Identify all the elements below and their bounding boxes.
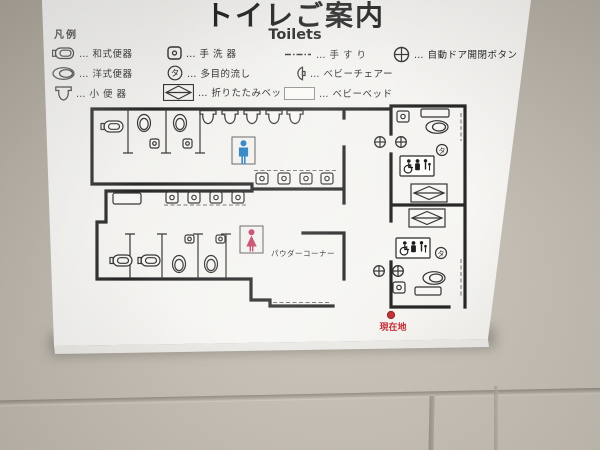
legend-item-urinal: … 小 便 器	[55, 85, 127, 101]
baby-bed	[421, 109, 449, 117]
svg-text:タ: タ	[171, 69, 180, 79]
wash-basin	[321, 173, 333, 184]
stall-basin	[216, 235, 225, 243]
legend-item-handrail: … 手 す り	[284, 46, 367, 62]
photo-of-toilet-sign: トイレご案内 Toilets 凡例 … 和式便器 … 洋式便器 … 小 便 器	[0, 0, 600, 450]
sign-subtitle: Toilets	[170, 27, 420, 43]
legend-item-squat-toilet: … 和式便器	[52, 45, 133, 61]
svg-text:タ: タ	[439, 146, 446, 155]
handrail-lines	[164, 113, 461, 303]
folding-bed	[409, 209, 445, 227]
legend-label: … ベビーチェアー	[310, 66, 393, 80]
legend-item-folding-bed: … 折りたたみベッド	[163, 84, 292, 100]
western-toilet	[423, 272, 445, 285]
squat-toilet	[110, 255, 132, 266]
legend-label: … 折りたたみベッド	[198, 85, 292, 99]
legend-heading: 凡例	[54, 26, 78, 41]
multipurpose-sink-icon: タ	[167, 65, 183, 81]
auto-door-button	[375, 137, 386, 148]
legend-item-multipurpose-sink: タ … 多目的流し	[167, 65, 251, 81]
accessible-sign	[396, 238, 430, 258]
multipurpose-toilet-upper: タ	[375, 109, 449, 202]
womens-room: パウダーコーナー	[110, 192, 335, 273]
wash-basin	[256, 173, 268, 184]
legend-label: … 洋式便器	[79, 66, 133, 80]
folding-bed-icon	[163, 84, 194, 101]
urinal	[200, 111, 216, 124]
wash-basin	[188, 192, 200, 203]
folding-bed	[411, 184, 447, 202]
accessible-sign	[400, 156, 434, 176]
tile-seam-vertical-2	[494, 386, 498, 450]
urinal	[244, 111, 260, 124]
legend-item-baby-bed: … ベビーベッド	[284, 85, 393, 101]
western-toilet	[426, 121, 448, 134]
female-pictogram	[240, 226, 263, 253]
legend-label: … 自動ドア開閉ボタン	[414, 47, 518, 61]
stall-basin	[185, 235, 194, 243]
hand-wash-basin-icon	[167, 46, 182, 60]
baby-chair-icon	[292, 66, 306, 81]
wash-basin	[210, 192, 222, 203]
baby-bed	[113, 193, 141, 204]
legend-label: … 和式便器	[79, 46, 133, 60]
stall-basin	[150, 139, 159, 148]
legend-item-auto-door-button: … 自動ドア開閉ボタン	[393, 46, 518, 62]
western-toilet	[138, 115, 151, 132]
powder-corner-label: パウダーコーナー	[271, 248, 335, 258]
multipurpose-toilet-lower: タ	[374, 209, 447, 295]
handrail-icon	[284, 51, 312, 58]
western-toilet	[173, 256, 186, 273]
wash-basin	[232, 192, 244, 203]
legend-item-hand-wash-basin: … 手 洗 器	[167, 45, 237, 61]
wash-basin	[397, 111, 409, 122]
western-toilet	[205, 256, 218, 273]
wash-basin	[166, 192, 178, 203]
male-pictogram	[232, 137, 255, 165]
wash-basin	[393, 282, 405, 293]
western-toilet	[174, 115, 187, 132]
squat-toilet	[138, 255, 160, 266]
current-location-marker: 現在地	[379, 311, 406, 333]
wash-basin	[300, 173, 312, 184]
current-location-label: 現在地	[379, 321, 406, 333]
legend-item-western-toilet: … 洋式便器	[52, 65, 133, 81]
plan-walls	[92, 106, 465, 307]
baby-bed-icon	[284, 87, 315, 100]
urinal-icon	[55, 86, 72, 101]
legend-label: … 小 便 器	[76, 86, 127, 100]
stall-basin	[183, 139, 192, 148]
wash-basin	[278, 173, 290, 184]
legend-label: … 手 す り	[316, 47, 367, 61]
squat-toilet-icon	[52, 47, 75, 60]
mens-room	[101, 111, 333, 184]
tile-seam-horizontal	[0, 387, 600, 406]
auto-door-button	[396, 137, 407, 148]
legend-label: … ベビーベッド	[319, 86, 393, 100]
tile-seam-vertical	[428, 396, 434, 450]
auto-door-button	[374, 266, 385, 277]
baby-bed	[415, 287, 441, 295]
legend-label: … 多目的流し	[187, 66, 251, 80]
svg-text:タ: タ	[438, 249, 445, 258]
floor-plan: パウダーコーナー タ タ	[80, 101, 492, 337]
urinal	[266, 111, 282, 124]
toilet-guide-sign-panel: トイレご案内 Toilets 凡例 … 和式便器 … 洋式便器 … 小 便 器	[0, 0, 600, 450]
auto-door-button-icon	[393, 46, 410, 63]
western-toilet-icon	[52, 67, 75, 80]
urinal	[222, 111, 238, 124]
legend-item-baby-chair: … ベビーチェアー	[292, 65, 393, 81]
legend-label: … 手 洗 器	[186, 46, 237, 60]
auto-door-button	[393, 266, 404, 277]
squat-toilet	[101, 121, 123, 132]
urinal	[287, 111, 303, 124]
